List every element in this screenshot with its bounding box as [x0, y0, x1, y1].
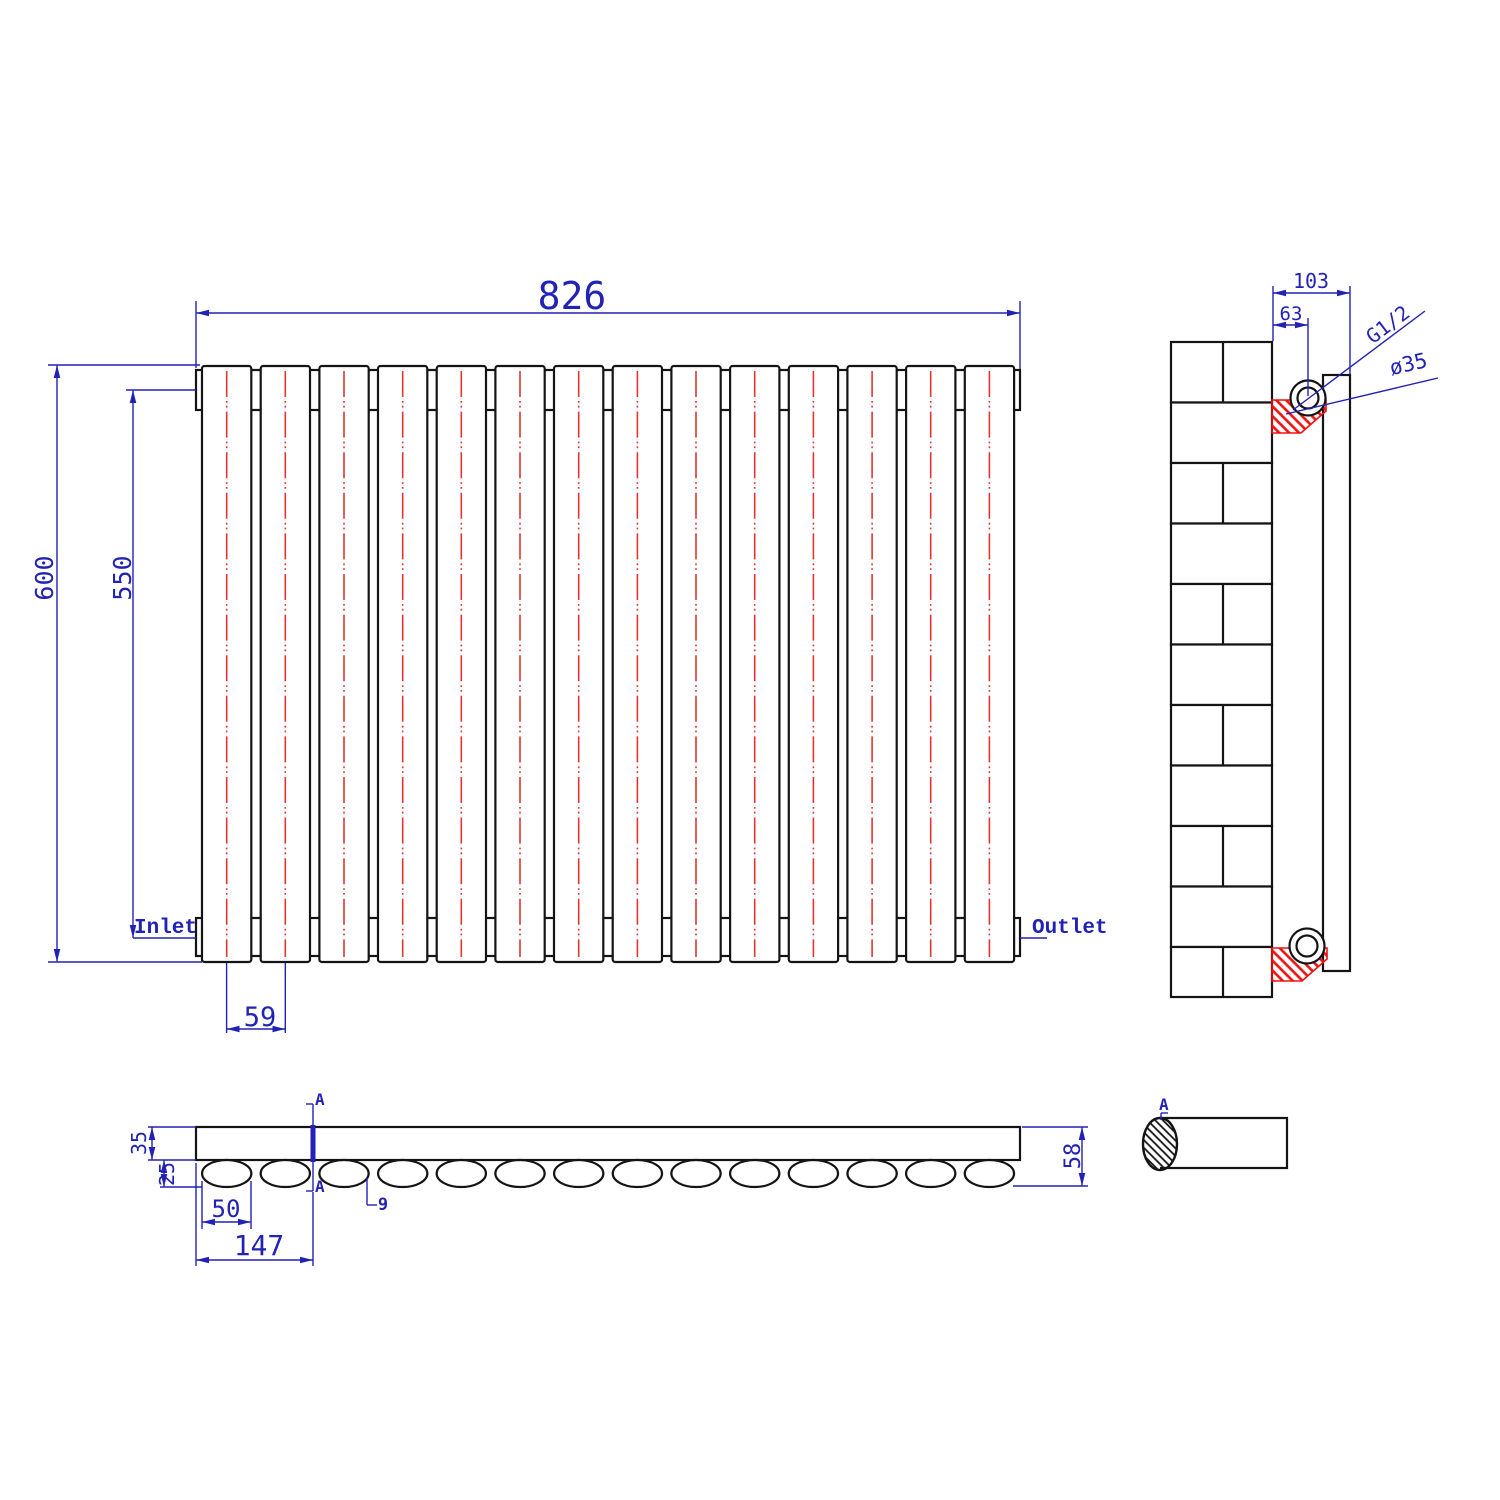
dim-text-9: 9	[378, 1195, 388, 1215]
brick-row	[1171, 766, 1272, 827]
bottom-pipe-connection-inner	[1297, 936, 1318, 957]
oval-tube-section	[789, 1160, 838, 1187]
brick-row	[1171, 524, 1272, 585]
tube-section-hatched	[1143, 1118, 1177, 1170]
brick-wall	[1171, 342, 1272, 997]
dim-text-147: 147	[234, 1229, 285, 1262]
oval-tube-section	[730, 1160, 779, 1187]
brick-row	[1171, 342, 1272, 403]
panel-bar-bottom-view	[196, 1127, 1020, 1160]
brick-row	[1171, 584, 1272, 645]
dim-text-58: 58	[1061, 1143, 1086, 1170]
dim-text-63: 63	[1280, 303, 1303, 325]
oval-tube-section	[261, 1160, 310, 1187]
inlet-label: Inlet	[134, 917, 197, 940]
oval-tube-section	[202, 1160, 251, 1187]
oval-tube-section	[613, 1160, 662, 1187]
oval-tube-section	[319, 1160, 368, 1187]
brick-row	[1171, 403, 1272, 464]
dim-text-59: 59	[244, 1002, 277, 1033]
oval-tube-section	[906, 1160, 955, 1187]
dim-text-600: 600	[30, 555, 59, 600]
oval-tube-section	[495, 1160, 544, 1187]
brick-row	[1171, 947, 1272, 997]
dim-text-550: 550	[108, 555, 137, 600]
oval-tube-section	[965, 1160, 1014, 1187]
oval-tube-section	[554, 1160, 603, 1187]
dim-text-35: 35	[127, 1131, 151, 1155]
oval-tube-section	[671, 1160, 720, 1187]
brick-row	[1171, 705, 1272, 766]
oval-tube-section	[437, 1160, 486, 1187]
dim-text-103: 103	[1293, 269, 1329, 293]
brick-row	[1171, 645, 1272, 706]
dim-text-826: 826	[538, 274, 607, 318]
dim-text-50: 50	[212, 1195, 241, 1223]
brick-row	[1171, 826, 1272, 887]
outlet-label: Outlet	[1032, 917, 1108, 940]
section-mark-bottom: A	[315, 1177, 325, 1196]
oval-tube-section	[378, 1160, 427, 1187]
oval-tube-section	[847, 1160, 896, 1187]
radiator-panel-side	[1323, 375, 1350, 971]
brick-row	[1171, 463, 1272, 524]
section-mark-detail: A	[1159, 1095, 1169, 1114]
section-mark-top: A	[315, 1090, 325, 1109]
dim-text-25: 25	[155, 1162, 179, 1186]
brick-row	[1171, 887, 1272, 948]
radiator-technical-drawing: 826 600 550 Inlet Outlet 59	[0, 0, 1500, 1500]
